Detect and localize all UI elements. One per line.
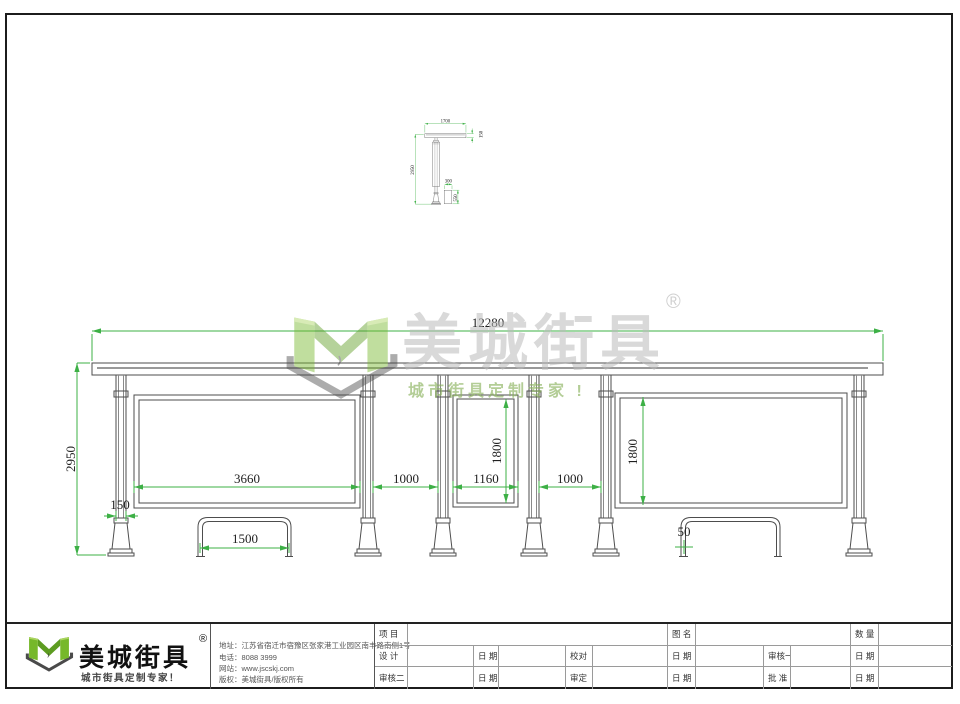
dim-total-width: 12280 — [472, 315, 505, 330]
date-value — [696, 646, 764, 668]
label-date: 日 期 — [851, 667, 879, 689]
middle-panel — [453, 395, 518, 507]
side-view-drawing: 1700 150 2950 300 550 — [405, 40, 640, 300]
front-view-drawing: 12280 2950 3660 1000 1160 1000 1800 1800… — [50, 295, 910, 565]
date-value — [879, 646, 952, 668]
company-phone: 电话：8088 3999 — [219, 652, 277, 663]
dim-bin-width: 300 — [445, 179, 453, 184]
columns — [108, 375, 872, 556]
brand-m-logo-icon — [23, 626, 75, 674]
review1-value — [791, 646, 851, 668]
dim-mid-panel: 1160 — [473, 471, 499, 486]
label-quantity: 数 量 — [851, 624, 879, 646]
dim-bin-height: 550 — [454, 194, 459, 202]
quantity-value — [879, 624, 952, 646]
label-date: 日 期 — [851, 646, 879, 668]
dim-side-height: 2950 — [411, 165, 416, 175]
roof-slab-side — [425, 134, 466, 138]
design-value — [408, 646, 474, 668]
label-design: 设 计 — [375, 646, 408, 668]
label-date: 日 期 — [668, 646, 696, 668]
label-ratify: 批 准 — [764, 667, 791, 689]
dim-left-panel: 3660 — [234, 471, 260, 486]
date-value — [499, 667, 566, 689]
company-website: 网站：www.jscskj.com — [219, 663, 294, 674]
label-review1: 审核一 — [764, 646, 791, 668]
drawing-name-value — [696, 624, 851, 646]
column-foot-side — [433, 194, 439, 202]
brand-name: 美城街具 — [79, 638, 191, 674]
column — [355, 375, 381, 556]
date-value — [879, 667, 952, 689]
review2-value — [408, 667, 474, 689]
dim-tube: 50 — [678, 524, 691, 539]
registered-icon: ® — [199, 633, 207, 645]
bin-side — [444, 190, 451, 204]
column — [430, 375, 456, 556]
label-proof: 校对 — [566, 646, 593, 668]
proof-value — [593, 646, 668, 668]
ratify-value — [791, 667, 851, 689]
dim-gap-left: 1000 — [393, 471, 419, 486]
label-review2: 审核二 — [375, 667, 408, 689]
label-project: 项 目 — [375, 624, 408, 646]
column-panel-side — [433, 142, 440, 186]
label-date: 日 期 — [668, 667, 696, 689]
drawing-sheet: 1700 150 2950 300 550 — [0, 0, 960, 704]
dim-mid-panel-height: 1800 — [489, 438, 504, 464]
dim-gap-right: 1000 — [557, 471, 583, 486]
dim-right-panel-height: 1800 — [625, 439, 640, 465]
company-info-cell: 地址：江苏省宿迁市宿豫区张家港工业园区南丰路南侧1号 电话：8088 3999 … — [210, 624, 375, 689]
approve-value — [593, 667, 668, 689]
dim-roof-thickness: 150 — [479, 130, 484, 138]
logo-cell: 美城街具 ® 城市街具定制专家！ — [7, 624, 210, 689]
label-drawing-name: 图 名 — [668, 624, 696, 646]
dim-front-height: 2950 — [63, 446, 78, 472]
title-block: 美城街具 ® 城市街具定制专家！ 地址：江苏省宿迁市宿豫区张家港工业园区南丰路南… — [7, 622, 951, 689]
right-bench — [679, 518, 782, 557]
shelter-side-structure — [425, 134, 466, 205]
right-panel — [615, 393, 847, 508]
label-approve: 审定 — [566, 667, 593, 689]
date-value — [696, 667, 764, 689]
label-date: 日 期 — [474, 667, 499, 689]
shelter-front-structure — [92, 363, 883, 557]
date-value — [499, 646, 566, 668]
dim-roof-width: 1700 — [441, 119, 451, 124]
column — [108, 375, 134, 556]
title-block-table: 项 目 图 名 数 量 设 计 日 期 校对 日 期 审核一 日 期 审核二 日… — [374, 624, 952, 689]
brand-slogan: 城市街具定制专家！ — [81, 670, 180, 684]
company-copyright: 版权：美城街具/版权所有 — [219, 674, 304, 685]
label-date: 日 期 — [474, 646, 499, 668]
left-panel — [134, 395, 360, 508]
dim-bench-width: 1500 — [232, 531, 258, 546]
project-value — [408, 624, 668, 646]
dim-column-width: 150 — [110, 497, 130, 512]
column — [521, 375, 547, 556]
column — [846, 375, 872, 556]
